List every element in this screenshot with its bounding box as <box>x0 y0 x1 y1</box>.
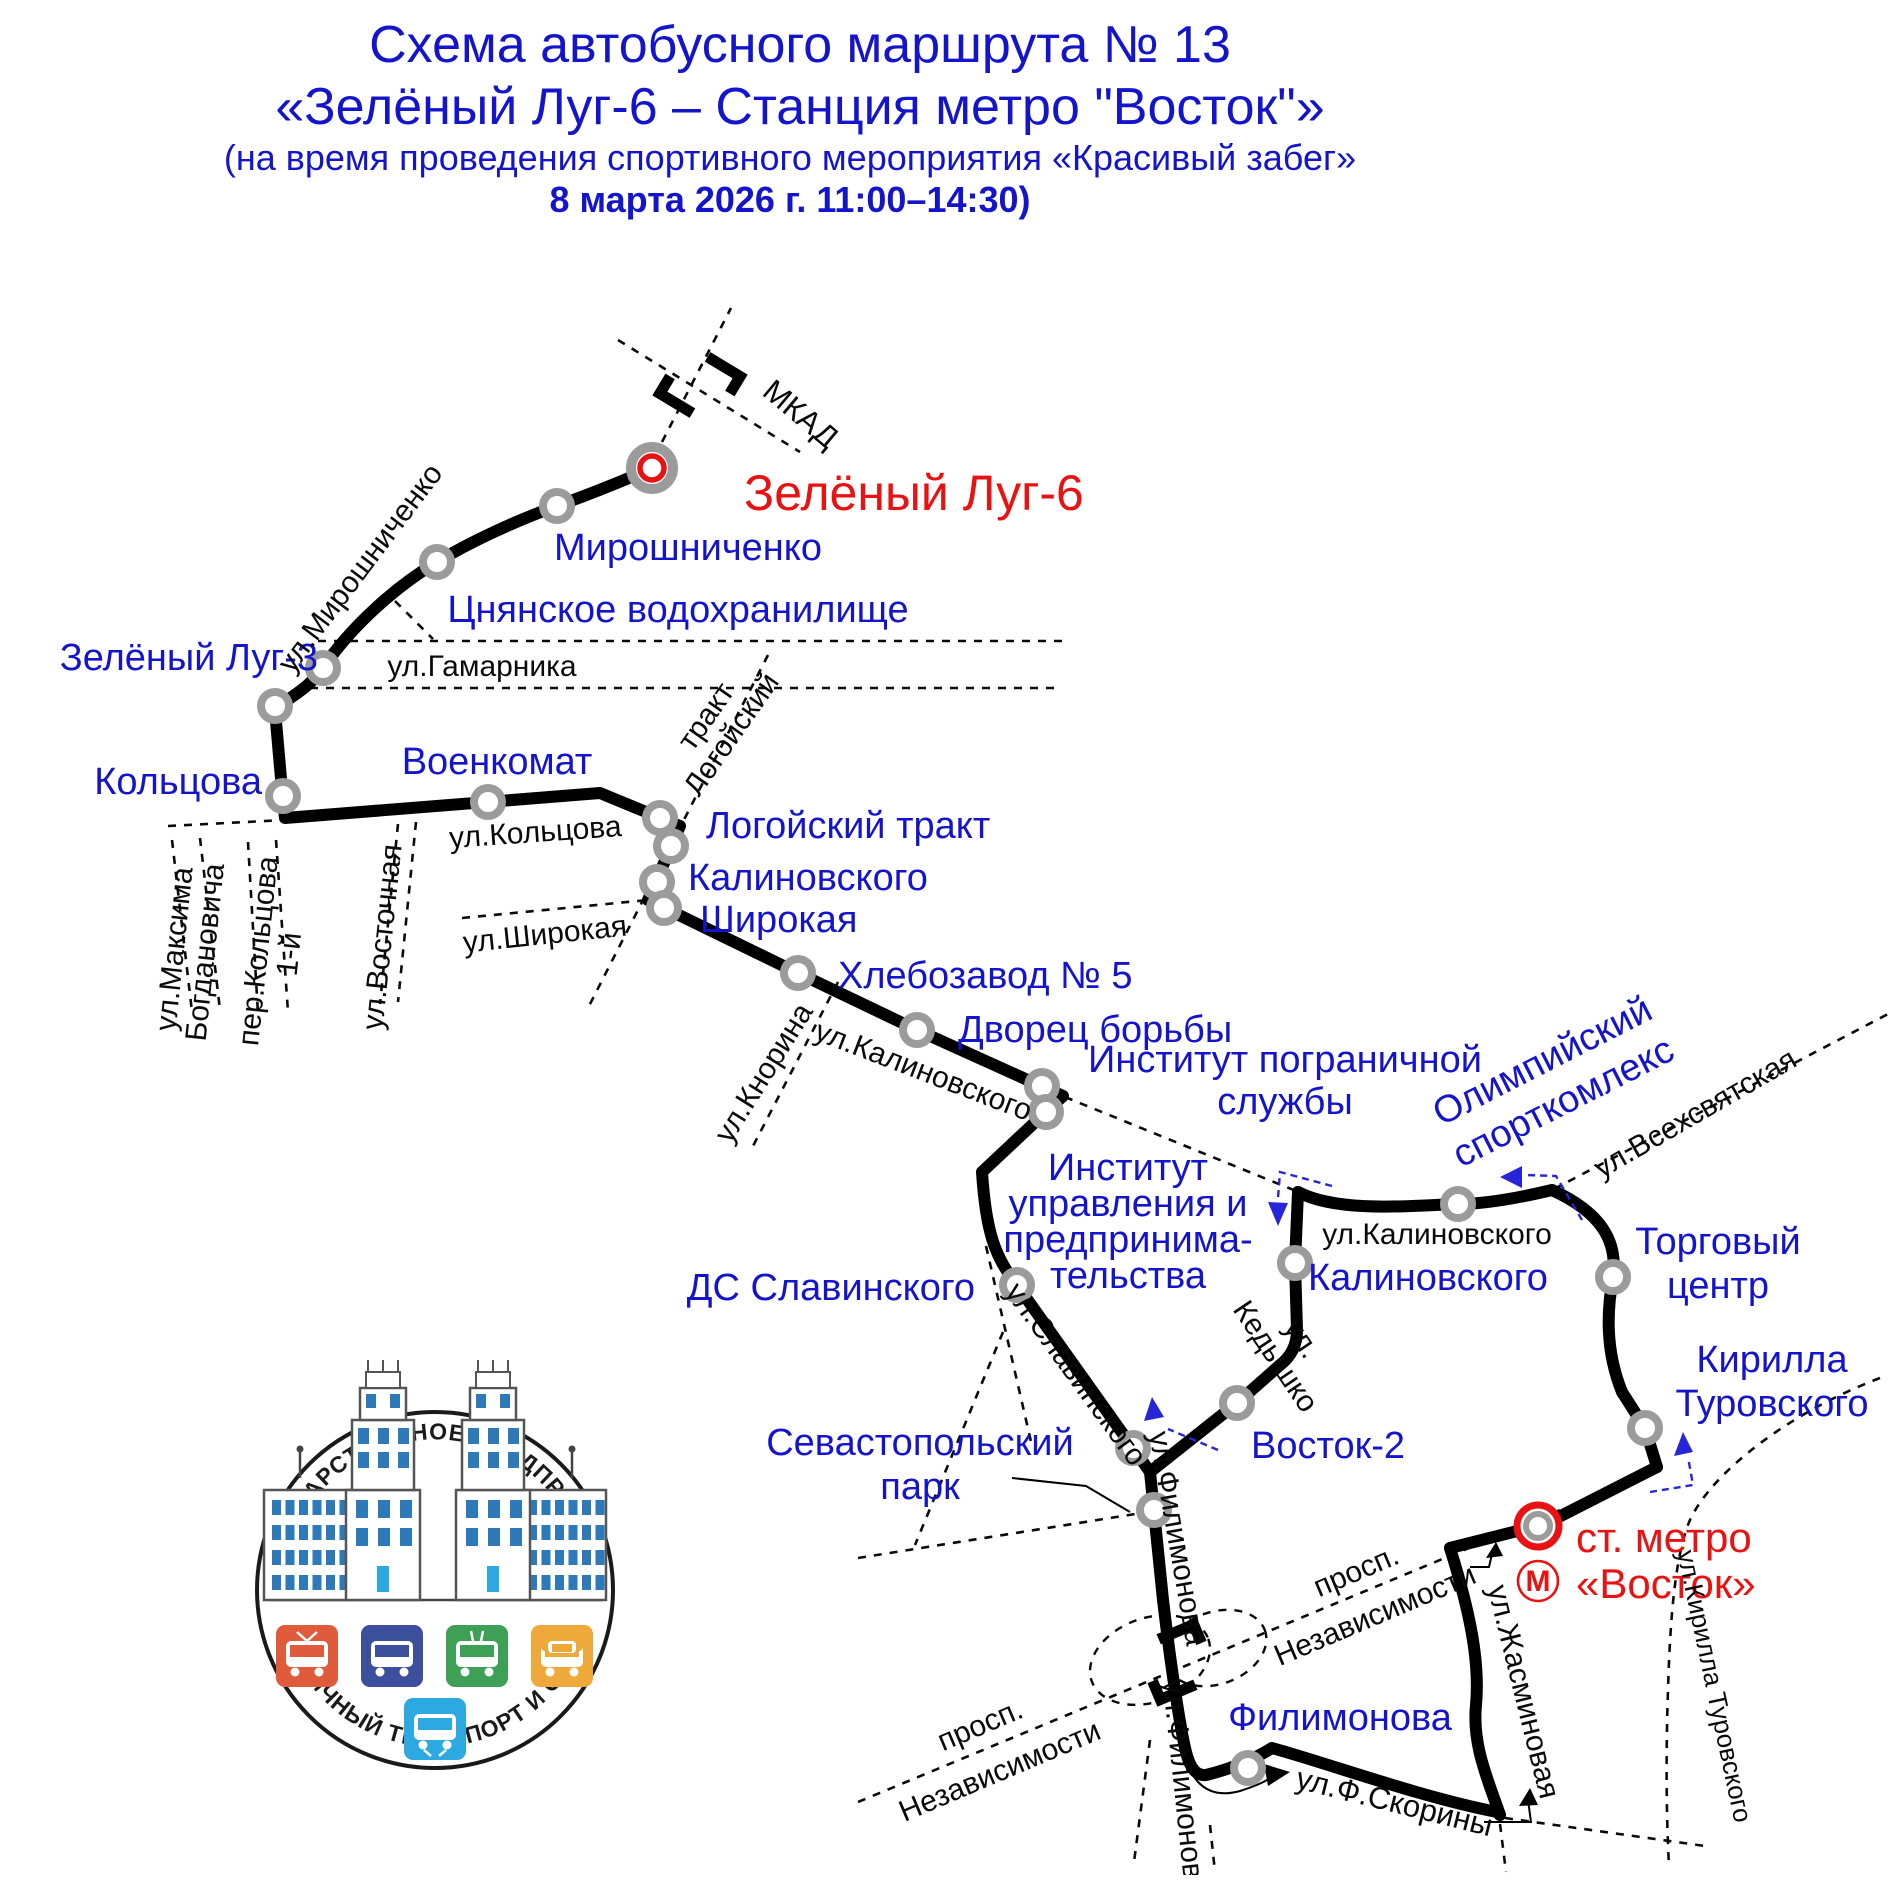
logo-window <box>555 1550 564 1565</box>
logo-window <box>358 1428 369 1444</box>
logo-window <box>542 1500 551 1515</box>
street-zhasminovaya: ул.Жасминовая <box>1481 1581 1566 1802</box>
logo-window <box>313 1500 322 1515</box>
logo-window <box>596 1575 605 1590</box>
logo-window <box>378 1500 390 1518</box>
stop-filimonova <box>1234 1754 1262 1782</box>
logo-window <box>326 1550 335 1565</box>
stop-vostok-2-marker <box>1223 1389 1251 1417</box>
terminal-zeleny-lug-6-inner <box>640 456 664 480</box>
title-line1: Схема автобусного маршрута № 13 <box>369 16 1231 74</box>
terminal-metro-vostok <box>1517 1505 1559 1547</box>
logo-window <box>378 1452 389 1468</box>
label-kalinovskogo: Калиновского <box>688 857 928 899</box>
logo-window <box>313 1575 322 1590</box>
logo-window <box>508 1452 519 1468</box>
stop-kalinovskogo-a <box>657 832 685 860</box>
logo-window <box>582 1550 591 1565</box>
logo-window <box>272 1575 281 1590</box>
street-vostochnaya: ул.Восточная <box>356 843 408 1032</box>
logo-window <box>326 1500 335 1515</box>
logo-window <box>555 1575 564 1590</box>
label-mkad: МКАД <box>756 373 845 455</box>
stop-tsnyanskoye <box>423 548 451 576</box>
logo-window <box>488 1500 500 1518</box>
label-logoysky-trakt: Логойский тракт <box>706 805 990 847</box>
street-trakt-logoysky: трактЛогойский <box>652 649 786 802</box>
logo-window <box>542 1550 551 1565</box>
logo-door <box>377 1566 389 1592</box>
arrowhead-loop-down <box>1268 1202 1288 1226</box>
logo-window <box>366 1394 376 1408</box>
logo-window <box>569 1525 578 1540</box>
logo-window <box>582 1500 591 1515</box>
label-torgovy-tsentr: Торговыйцентр <box>1635 1221 1800 1307</box>
stop-voyenkomat <box>474 788 502 816</box>
label-institut-pogranichnoy: Институт пограничнойслужбы <box>1088 1039 1482 1123</box>
logo-window <box>596 1550 605 1565</box>
route-loop-top <box>1298 1190 1552 1207</box>
logo-window <box>555 1525 564 1540</box>
label-kalinovskogo-loop: Калиновского <box>1308 1257 1548 1299</box>
logo-window <box>488 1428 499 1444</box>
label-vostok-2: Восток-2 <box>1251 1425 1405 1467</box>
logo-window <box>356 1528 368 1546</box>
logo-window <box>500 1394 510 1408</box>
route-scheme-poster: Схема автобусного маршрута № 13 «Зелёный… <box>0 0 1898 1875</box>
label-institut-upravleniya: Институтуправления ипредпринима-тельства <box>1003 1147 1252 1297</box>
callout-sevastopolsky <box>1012 1478 1130 1512</box>
logo-window <box>569 1500 578 1515</box>
logo-window <box>378 1528 390 1546</box>
stop-dvorets-borby-marker <box>903 1016 931 1044</box>
street-kalinovskogo-loop: ул.Калиновского <box>1322 1218 1552 1251</box>
label-st-metro-vostok: ст. метро«Восток» <box>1576 1514 1756 1607</box>
stop-koltsova <box>269 782 297 810</box>
label-sevastopolsky-park: Севастопольскийпарк <box>766 1422 1074 1508</box>
logo-window <box>378 1428 389 1444</box>
logo-window <box>468 1452 479 1468</box>
logo-window <box>356 1500 368 1518</box>
trolleybus-icon <box>446 1625 508 1687</box>
car-icon <box>531 1625 593 1687</box>
stop-logoysky-trakt-marker <box>646 804 674 832</box>
logo-window <box>299 1500 308 1515</box>
title-line2: «Зелёный Луг-6 – Станция метро "Восток"» <box>275 78 1324 136</box>
logo-tower-crown <box>476 1372 510 1388</box>
metro-train-icon <box>404 1698 466 1760</box>
operator-logo: ГОСУДАРСТВЕННОЕ ПРЕДПРИЯТИЕ СТОЛИЧНЫЙ ТР… <box>0 0 613 1768</box>
street-nezavisimosti-right: просп.Независимости <box>1251 1514 1481 1673</box>
stop-koltsova-marker <box>269 782 297 810</box>
stop-logoysky-trakt <box>646 804 674 832</box>
stop-khlebozavod-5-marker <box>784 959 812 987</box>
stop-miroshnichenko <box>543 492 571 520</box>
logo-window <box>508 1428 519 1444</box>
label-miroshnichenko: Мирошниченко <box>554 527 822 569</box>
stop-torgovy-tsentr-marker <box>1599 1263 1627 1291</box>
tram-icon <box>276 1625 338 1687</box>
logo-window <box>569 1550 578 1565</box>
stop-kalinovskogo-loop-marker <box>1281 1249 1309 1277</box>
logo-window <box>286 1500 295 1515</box>
label-ds-slavinskogo: ДС Славинского <box>687 1267 975 1309</box>
logo-window <box>466 1500 478 1518</box>
street-f-skoriny: ул.Ф.Скорины <box>1293 1760 1497 1843</box>
label-filimonova: Филимонова <box>1228 1697 1453 1739</box>
logo-window <box>299 1575 308 1590</box>
stop-kirilla-turovskogo <box>1631 1414 1659 1442</box>
stop-miroshnichenko-marker <box>543 492 571 520</box>
street-shirokaya: ул.Широкая <box>461 910 628 960</box>
terminal-metro-vostok-inner <box>1526 1514 1550 1538</box>
stop-tsnyanskoye-marker <box>423 548 451 576</box>
logo-window <box>390 1394 400 1408</box>
stop-olimpiysky <box>1444 1190 1472 1218</box>
logo-window <box>510 1500 522 1518</box>
label-tsnyanskoye: Цнянское водохранилище <box>447 589 908 631</box>
logo-window <box>326 1525 335 1540</box>
arrowhead-turovskogo-up <box>1674 1432 1693 1456</box>
stop-shirokaya-marker <box>650 894 678 922</box>
logo-window <box>299 1525 308 1540</box>
logo-window <box>488 1528 500 1546</box>
logo-window <box>286 1550 295 1565</box>
logo-window <box>510 1528 522 1546</box>
stop-shirokaya <box>650 894 678 922</box>
logo-window <box>313 1525 322 1540</box>
logo-window <box>272 1500 281 1515</box>
street-line-koltsova-west <box>168 820 285 826</box>
logo-window <box>596 1525 605 1540</box>
street-line-nezavisimosti <box>858 1508 1565 1802</box>
logo-window <box>272 1525 281 1540</box>
logo-window <box>468 1428 479 1444</box>
label-khlebozavod-5: Хлебозавод № 5 <box>838 955 1133 997</box>
stop-institut-pogranichnoy-b-marker <box>1032 1098 1060 1126</box>
logo-window <box>398 1452 409 1468</box>
logo-tower-crown <box>366 1372 400 1388</box>
logo-window <box>400 1500 412 1518</box>
street-line-miroshnichenko-ext <box>662 308 731 442</box>
logo-window <box>358 1452 369 1468</box>
logo-window <box>313 1550 322 1565</box>
logo-window <box>542 1575 551 1590</box>
logo-window <box>596 1500 605 1515</box>
stop-vostok-2 <box>1223 1389 1251 1417</box>
logo-window <box>466 1528 478 1546</box>
stop-filimonova-marker <box>1234 1754 1262 1782</box>
logo-window <box>400 1528 412 1546</box>
stop-voyenkomat-marker <box>474 788 502 816</box>
stop-khlebozavod-5 <box>784 959 812 987</box>
logo-door <box>487 1566 499 1592</box>
label-kirilla-turovskogo: КириллаТуровского <box>1675 1339 1868 1425</box>
stop-institut-pogranichnoy-b <box>1032 1098 1060 1126</box>
label-zeleny-lug-6: Зелёный Луг-6 <box>744 465 1084 521</box>
stop-kalinovskogo-loop <box>1281 1249 1309 1277</box>
street-nezavisimosti-left: просп.Независимости <box>875 1668 1106 1829</box>
street-maksima-bogdanovicha: ул.МаксимаБогдановича <box>149 858 231 1042</box>
stop-kirilla-turovskogo-marker <box>1631 1414 1659 1442</box>
stop-olimpiysky-marker <box>1444 1190 1472 1218</box>
title-block: Схема автобусного маршрута № 13 «Зелёный… <box>224 16 1356 220</box>
logo-window <box>398 1428 409 1444</box>
label-koltsova: Кольцова <box>94 761 263 803</box>
title-line4: 8 марта 2026 г. 11:00–14:30) <box>549 179 1030 220</box>
logo-window <box>582 1575 591 1590</box>
antenna-tip <box>569 1446 576 1453</box>
stop-kalinovskogo-a-marker <box>657 832 685 860</box>
logo-window <box>272 1550 281 1565</box>
label-metro-m: М <box>1526 1565 1551 1598</box>
street-line-tsnyanskoye-link <box>395 601 433 639</box>
logo-window <box>286 1575 295 1590</box>
arrowhead-slavinskogo-up <box>1144 1397 1164 1421</box>
stop-dvorets-borby <box>903 1016 931 1044</box>
callout-arrowhead-filimonova <box>1264 1764 1290 1786</box>
logo-window <box>555 1500 564 1515</box>
antenna-tip <box>297 1446 304 1453</box>
bus-icon <box>361 1625 423 1687</box>
street-per-koltsova: пер.Кольцова1-й <box>232 854 316 1050</box>
stop-zeleny-lug-3b-marker <box>261 692 289 720</box>
logo-window <box>476 1394 486 1408</box>
title-line3: (на время проведения спортивного меропри… <box>224 137 1356 178</box>
logo-window <box>326 1575 335 1590</box>
logo-window <box>542 1525 551 1540</box>
logo-window <box>286 1525 295 1540</box>
arrowhead-top-west <box>1500 1166 1522 1188</box>
street-line-skoriny-east <box>1500 1818 1705 1872</box>
street-gamarnika: ул.Гамарника <box>387 650 577 683</box>
terminal-zeleny-lug-6 <box>631 447 673 489</box>
stop-torgovy-tsentr <box>1599 1263 1627 1291</box>
mkad-bridge-icon <box>660 346 740 425</box>
logo-window <box>488 1452 499 1468</box>
logo-window <box>582 1525 591 1540</box>
logo-window <box>299 1550 308 1565</box>
stop-zeleny-lug-3b <box>261 692 289 720</box>
label-voyenkomat: Военкомат <box>402 741 593 783</box>
label-shirokaya: Широкая <box>700 899 858 941</box>
street-koltsova: ул.Кольцова <box>448 810 623 855</box>
logo-window <box>569 1575 578 1590</box>
street-line-sevastopolsky <box>858 1512 1148 1558</box>
